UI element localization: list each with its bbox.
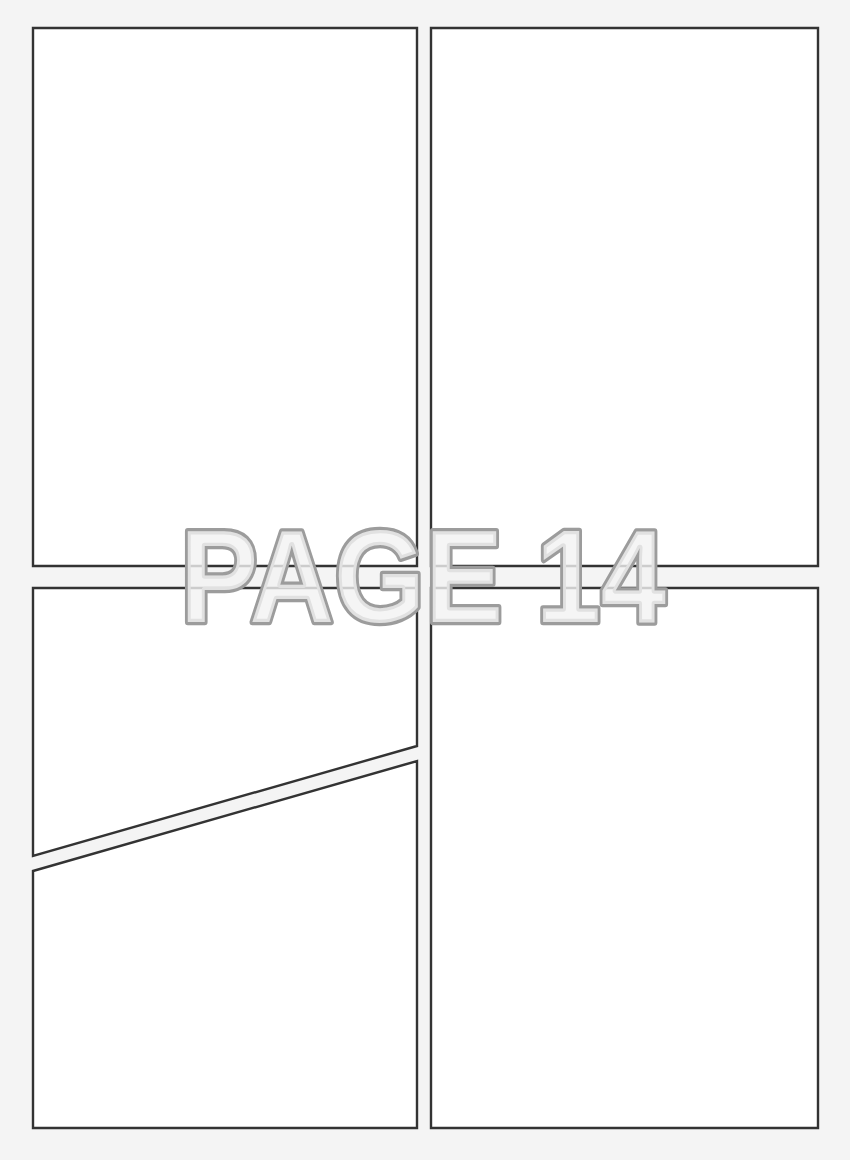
panel-top-left [33, 28, 417, 566]
panel-bottom-right [431, 588, 818, 1128]
comic-page-canvas: PAGE 14 [0, 0, 850, 1160]
comic-page-template: PAGE 14 [0, 0, 850, 1160]
page-number-watermark: PAGE 14 [180, 503, 666, 650]
panel-top-right [431, 28, 818, 566]
